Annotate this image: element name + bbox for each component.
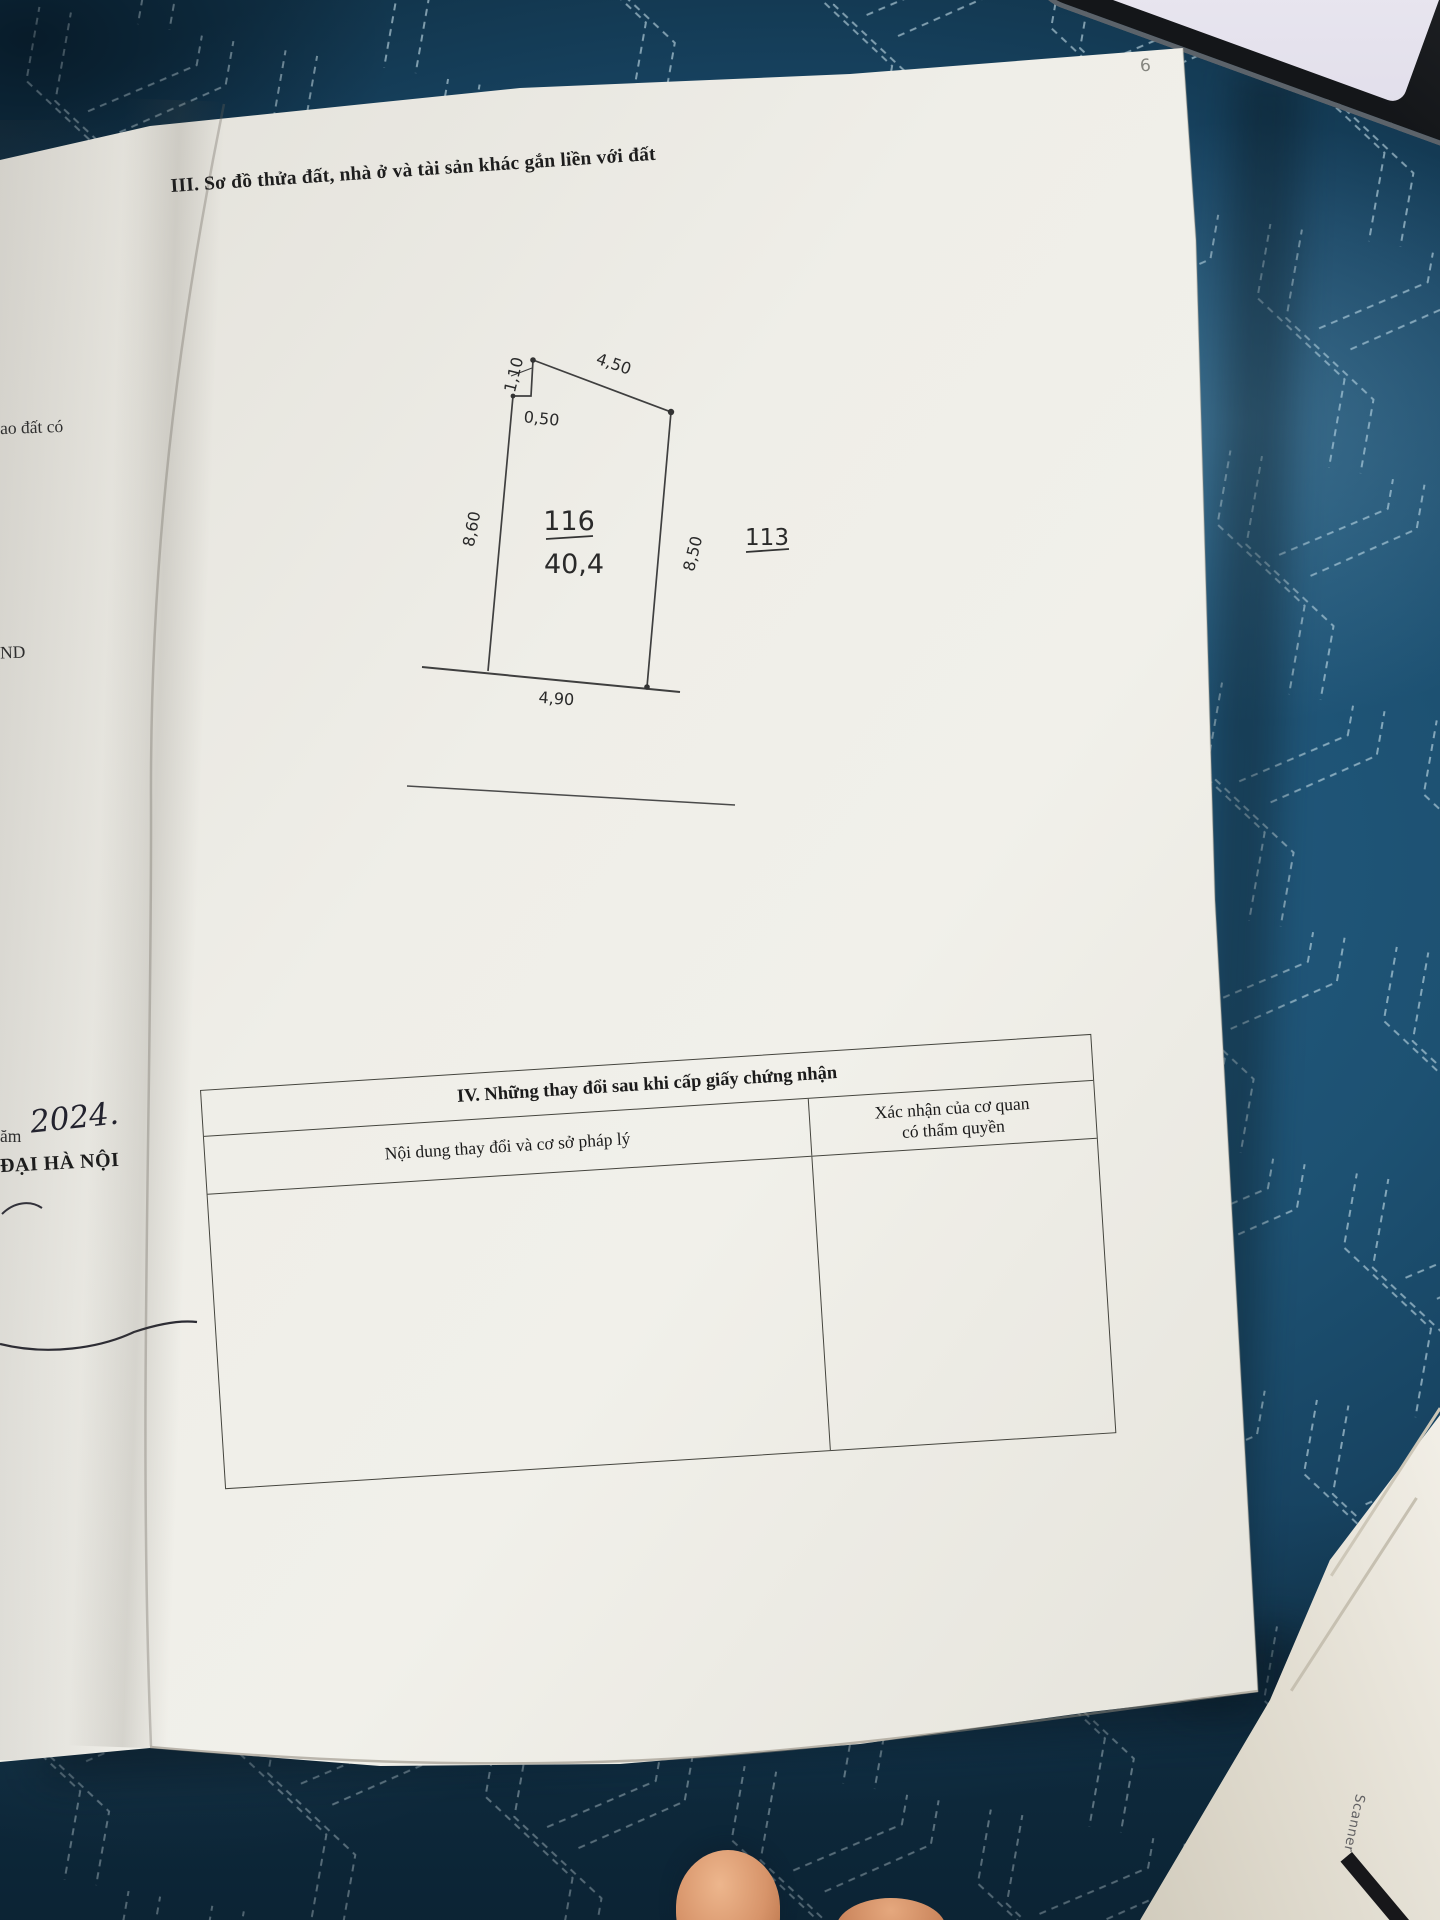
table-body-left-cell [208, 1157, 831, 1488]
table-body-right-cell [812, 1139, 1115, 1450]
table-body-row [208, 1139, 1116, 1488]
dim-label-step: 0,50 [523, 407, 560, 430]
section-iv-table: IV. Những thay đổi sau khi cấp giấy chứn… [200, 1034, 1116, 1489]
left-page-fragment-text: ND [0, 642, 26, 664]
left-page-shading [0, 120, 140, 1760]
photo-of-land-certificate: Scanner [0, 0, 1440, 1920]
adjacent-plot-label: 113 [745, 525, 789, 551]
left-page-fragment-text: ao đất có [0, 416, 64, 439]
page-number: 6 [1139, 56, 1152, 77]
left-page-year-prefix: ăm [0, 1126, 21, 1147]
plot-area-label: 40,4 [544, 549, 604, 580]
plot-number-label: 116 [543, 506, 595, 537]
dim-label-bottom: 4,90 [538, 688, 575, 709]
